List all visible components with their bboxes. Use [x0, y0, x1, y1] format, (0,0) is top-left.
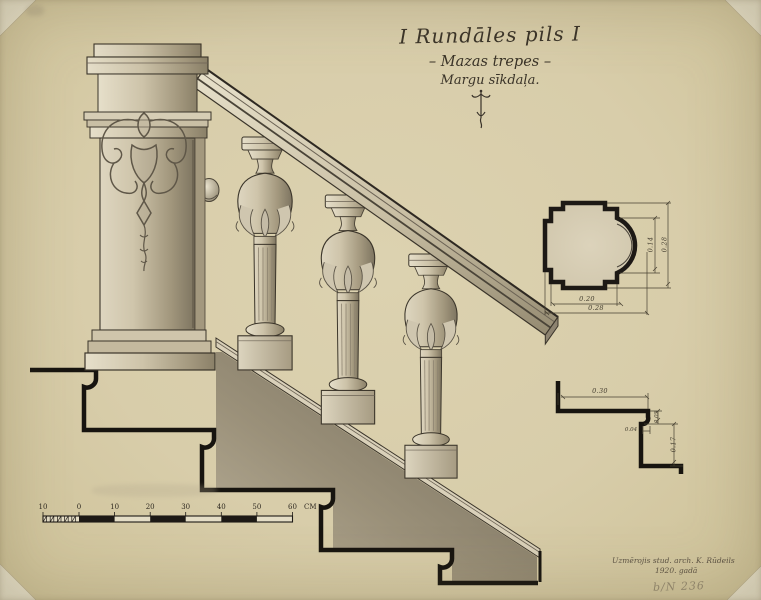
surveyor-signature: Uzmērojis stud. arch. K. Rūdeils	[612, 557, 735, 565]
scale-label-50: 50	[247, 504, 267, 512]
scale-label-60: 60	[283, 504, 303, 512]
sheet-subtitle-2: Margu sīkdaļa.	[395, 74, 585, 88]
text-overlay: I Rundāles pils I – Mazas trepes – Margu…	[0, 0, 761, 600]
plan-dim-width-inner: 0.20	[569, 296, 605, 303]
archive-number: b/N 236	[653, 580, 705, 594]
profile-dim-tread: 0.30	[585, 388, 615, 395]
profile-dim-riser: 0.17	[670, 434, 677, 456]
drawing-sheet: I Rundāles pils I – Mazas trepes – Margu…	[0, 0, 761, 600]
erased-pencil-smudge	[92, 484, 217, 497]
plan-dim-width-outer: 0.28	[578, 305, 614, 312]
scale-label-20: 20	[140, 504, 160, 512]
pencil-mark-smudge	[26, 5, 44, 16]
scale-label-10-left: 10	[33, 504, 53, 512]
sheet-title: I Rundāles pils I	[370, 22, 610, 48]
plan-dim-arc: 0.14	[647, 233, 654, 257]
profile-dim-nosing-depth: 0.04	[621, 427, 641, 433]
scale-label-40: 40	[211, 504, 231, 512]
plan-dim-height: 0.28	[661, 233, 668, 257]
survey-year: 1920. gadā	[655, 567, 697, 575]
scale-label-0: 0	[69, 504, 89, 512]
scale-label-30: 30	[176, 504, 196, 512]
scale-unit: CM	[304, 504, 330, 512]
scale-label-10: 10	[105, 504, 125, 512]
profile-dim-nosing-height: 0.05	[654, 407, 660, 427]
sheet-subtitle: – Mazas trepes –	[390, 55, 590, 71]
